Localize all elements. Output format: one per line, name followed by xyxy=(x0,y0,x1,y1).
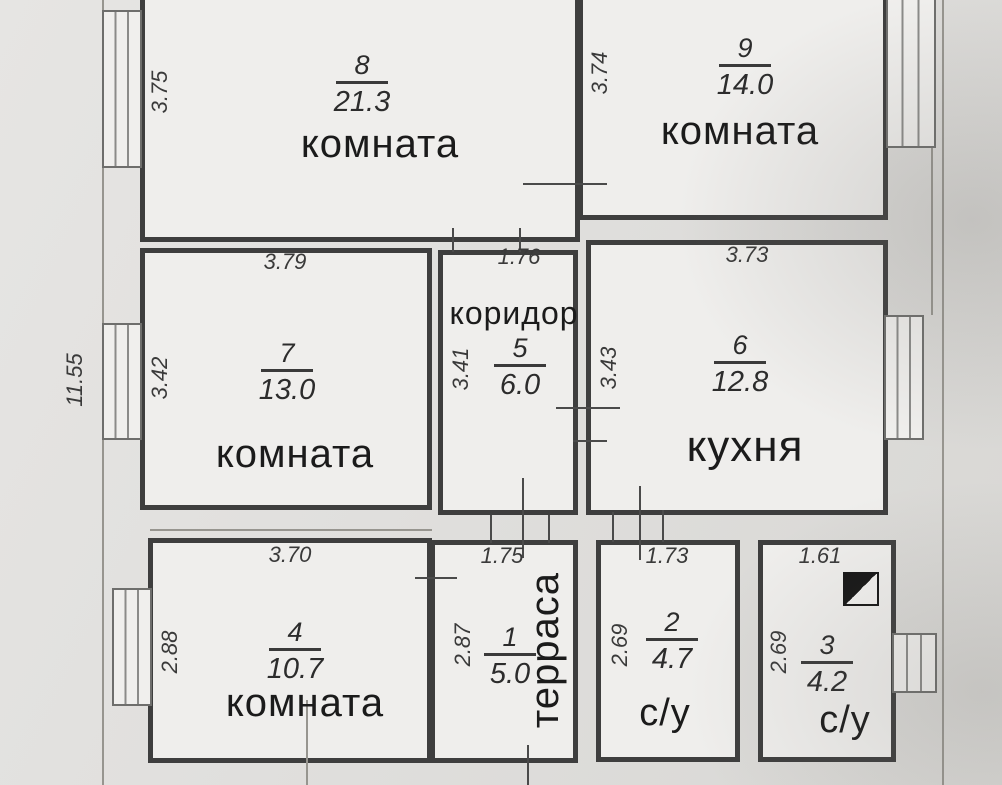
dimension-label: 1.73 xyxy=(627,544,707,568)
door-tick xyxy=(662,510,664,542)
dimension-label: 1.76 xyxy=(479,245,559,269)
room-label: терраса xyxy=(525,550,565,750)
wall-face-line xyxy=(931,148,933,315)
floor-plan: 3.75 3.74 11.55 3.42 3.41 3.43 2.88 2.87… xyxy=(0,0,1002,785)
room-area: 4.2 xyxy=(772,666,882,699)
room-label: комната xyxy=(250,122,510,167)
room-area: 13.0 xyxy=(232,374,342,407)
door-tick xyxy=(523,183,607,185)
window-icon xyxy=(112,588,152,706)
room-tag: 9 14.0 xyxy=(690,33,800,102)
room-label: коридор xyxy=(414,295,614,332)
window-icon xyxy=(886,0,936,148)
dimension-label: 1.61 xyxy=(780,544,860,568)
dimension-label: 3.43 xyxy=(597,333,621,403)
dimension-label: 3.79 xyxy=(245,250,325,274)
dimension-label-overall: 11.55 xyxy=(63,340,87,420)
room-number: 9 xyxy=(719,33,770,67)
room-tag: 5 6.0 xyxy=(465,333,575,402)
room-label: с/у xyxy=(785,699,905,742)
door-tick xyxy=(452,228,454,252)
room-number: 2 xyxy=(646,607,697,641)
dimension-label: 3.75 xyxy=(148,57,172,127)
room-tag: 7 13.0 xyxy=(232,338,342,407)
room-komnata-8 xyxy=(140,0,580,242)
room-area: 21.3 xyxy=(307,86,417,119)
door-tick xyxy=(556,407,620,409)
window-icon xyxy=(892,633,937,693)
room-number: 3 xyxy=(801,630,852,664)
dimension-label: 2.88 xyxy=(158,617,182,687)
room-label: комната xyxy=(610,109,870,154)
room-area: 4.7 xyxy=(617,643,727,676)
room-tag: 8 21.3 xyxy=(307,50,417,119)
section-line xyxy=(150,529,432,531)
room-label: комната xyxy=(175,681,435,726)
window-icon xyxy=(884,315,924,440)
room-tag: 3 4.2 xyxy=(772,630,882,699)
room-tag: 2 4.7 xyxy=(617,607,727,676)
dimension-label: 3.42 xyxy=(148,343,172,413)
room-number: 8 xyxy=(336,50,387,84)
door-tick xyxy=(490,515,492,543)
door-tick xyxy=(573,440,607,442)
room-tag: 4 10.7 xyxy=(240,617,350,686)
window-icon xyxy=(102,10,142,168)
room-tag: 6 12.8 xyxy=(685,330,795,399)
room-area: 14.0 xyxy=(690,69,800,102)
room-number: 5 xyxy=(494,333,545,367)
door-tick xyxy=(612,512,614,542)
dimension-label: 3.74 xyxy=(588,38,612,108)
room-number: 7 xyxy=(261,338,312,372)
room-label: комната xyxy=(165,432,425,477)
door-tick xyxy=(548,515,550,543)
entry-marker-icon xyxy=(843,572,879,606)
room-number: 4 xyxy=(269,617,320,651)
room-label: кухня xyxy=(615,422,875,472)
room-area: 12.8 xyxy=(685,366,795,399)
room-area: 6.0 xyxy=(465,369,575,402)
room-number: 6 xyxy=(714,330,765,364)
door-tick xyxy=(527,745,529,785)
room-label: с/у xyxy=(605,692,725,735)
window-icon xyxy=(102,323,142,440)
door-tick xyxy=(415,577,457,579)
dimension-label: 3.73 xyxy=(707,243,787,267)
boundary-line-right xyxy=(942,0,944,785)
dimension-label: 3.70 xyxy=(250,543,330,567)
